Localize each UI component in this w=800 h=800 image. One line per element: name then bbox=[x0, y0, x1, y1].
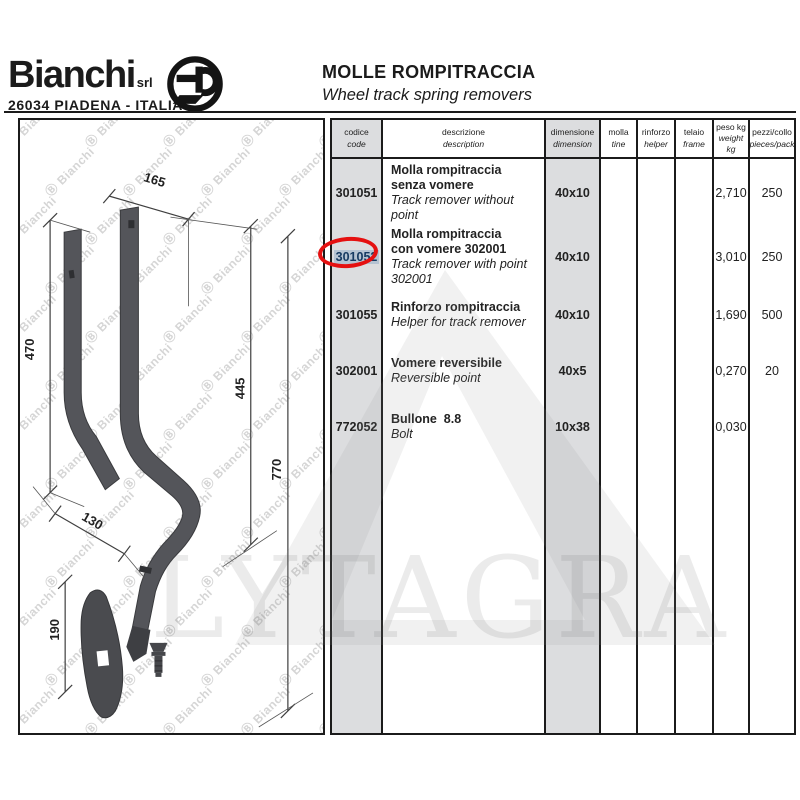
cell-molla bbox=[599, 159, 636, 227]
title-rule bbox=[4, 111, 796, 113]
cell-description: Molla rompitracciasenza vomereTrack remo… bbox=[381, 159, 544, 227]
filler-cell bbox=[636, 455, 674, 733]
filler-cell bbox=[748, 455, 794, 733]
dim-label-190: 190 bbox=[47, 619, 62, 641]
cell-telaio bbox=[674, 343, 712, 399]
spring-bars bbox=[64, 207, 200, 632]
product-table: codicecodedescrizionedescriptiondimensio… bbox=[330, 118, 796, 735]
cell-pieces: 250 bbox=[748, 227, 794, 287]
spring-point-tip bbox=[126, 626, 150, 662]
cell-rinforzo bbox=[636, 343, 674, 399]
cell-molla bbox=[599, 343, 636, 399]
highlighted-code: 301052 bbox=[334, 250, 380, 264]
blade-hole bbox=[97, 650, 110, 666]
cell-code-772052: 772052 bbox=[332, 399, 381, 455]
column-header-description: descrizionedescription bbox=[381, 120, 544, 159]
code-text: 301055 bbox=[336, 308, 378, 322]
code-text: 301051 bbox=[336, 186, 378, 200]
column-header-weight-kg: peso kgweight kg bbox=[712, 120, 748, 159]
brand-block: Bianchisrl 26034 PIADENA - ITALIA bbox=[8, 56, 183, 112]
dim-label-770: 770 bbox=[269, 459, 284, 481]
cell-dimension: 40x10 bbox=[544, 287, 599, 343]
column-header-pieces-pack: pezzi/collopieces/pack bbox=[748, 120, 794, 159]
cell-telaio bbox=[674, 159, 712, 227]
brand-name: Bianchi bbox=[8, 56, 135, 94]
cell-rinforzo bbox=[636, 287, 674, 343]
cell-telaio bbox=[674, 399, 712, 455]
bar-hole-mark bbox=[128, 220, 134, 228]
filler-cell bbox=[674, 455, 712, 733]
cell-molla bbox=[599, 227, 636, 287]
filler-cell bbox=[332, 455, 381, 733]
filler-cell bbox=[712, 455, 748, 733]
bianchi-emblem-icon bbox=[166, 55, 224, 118]
filler-cell bbox=[381, 455, 544, 733]
cell-rinforzo bbox=[636, 399, 674, 455]
cell-weight: 2,710 bbox=[712, 159, 748, 227]
spring-remover-drawing: 165 470 445 770 130 190 bbox=[20, 120, 323, 733]
column-header-frame: telaioframe bbox=[674, 120, 712, 159]
brand-suffix: srl bbox=[137, 76, 153, 89]
cell-description: Bullone 8.8Bolt bbox=[381, 399, 544, 455]
column-header-helper: rinforzohelper bbox=[636, 120, 674, 159]
cell-molla bbox=[599, 287, 636, 343]
bolt bbox=[149, 643, 167, 677]
cell-dimension: 40x10 bbox=[544, 227, 599, 287]
cell-description: Rinforzo rompitracciaHelper for track re… bbox=[381, 287, 544, 343]
title-block: MOLLE ROMPITRACCIA Wheel track spring re… bbox=[322, 62, 535, 105]
filler-cell bbox=[599, 455, 636, 733]
cell-code-301051: 301051 bbox=[332, 159, 381, 227]
cell-dimension: 40x5 bbox=[544, 343, 599, 399]
cell-description: Vomere reversibileReversible point bbox=[381, 343, 544, 399]
cell-weight: 0,030 bbox=[712, 399, 748, 455]
column-header-dimension: dimensionedimension bbox=[544, 120, 599, 159]
cell-telaio bbox=[674, 227, 712, 287]
filler-cell bbox=[544, 455, 599, 733]
cell-weight: 3,010 bbox=[712, 227, 748, 287]
cell-pieces: 500 bbox=[748, 287, 794, 343]
column-header-code: codicecode bbox=[332, 120, 381, 159]
catalog-page: Bianchisrl 26034 PIADENA - ITALIA MOLLE … bbox=[0, 0, 800, 800]
cell-description: Molla rompitracciacon vomere 302001Track… bbox=[381, 227, 544, 287]
dim-label-165: 165 bbox=[142, 169, 167, 190]
code-text: 772052 bbox=[336, 420, 378, 434]
cell-dimension: 40x10 bbox=[544, 159, 599, 227]
page-subtitle: Wheel track spring removers bbox=[322, 86, 535, 105]
cell-code-302001: 302001 bbox=[332, 343, 381, 399]
cell-telaio bbox=[674, 287, 712, 343]
cell-rinforzo bbox=[636, 227, 674, 287]
cell-pieces bbox=[748, 399, 794, 455]
column-header-tine: mollatine bbox=[599, 120, 636, 159]
cell-weight: 0,270 bbox=[712, 343, 748, 399]
cell-dimension: 10x38 bbox=[544, 399, 599, 455]
brand-address: 26034 PIADENA - ITALIA bbox=[8, 98, 183, 112]
dim-label-130: 130 bbox=[79, 509, 105, 533]
cell-code-301055: 301055 bbox=[332, 287, 381, 343]
dim-label-445: 445 bbox=[233, 378, 248, 400]
cell-pieces: 20 bbox=[748, 343, 794, 399]
cell-pieces: 250 bbox=[748, 159, 794, 227]
cell-weight: 1,690 bbox=[712, 287, 748, 343]
technical-drawing-box: Ⓑ BianchiⒷ BianchiⒷ BianchiⒷ BianchiⒷ Bi… bbox=[18, 118, 325, 735]
code-text: 302001 bbox=[336, 364, 378, 378]
cell-molla bbox=[599, 399, 636, 455]
cell-rinforzo bbox=[636, 159, 674, 227]
cell-code-301052: 301052 bbox=[332, 227, 381, 287]
page-title: MOLLE ROMPITRACCIA bbox=[322, 62, 535, 83]
dim-label-470: 470 bbox=[22, 339, 37, 361]
